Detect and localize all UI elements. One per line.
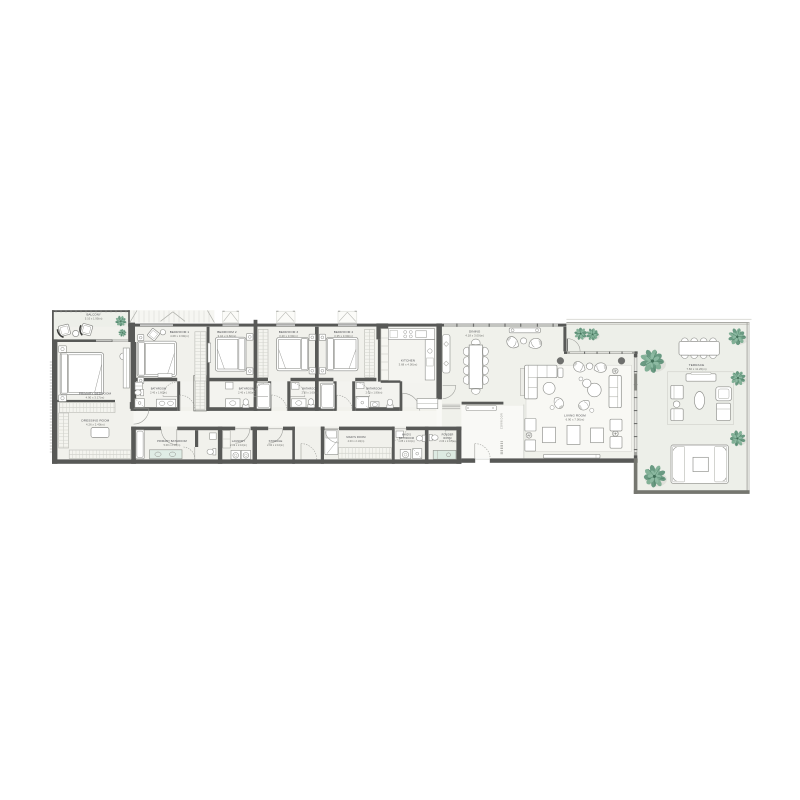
svg-text:BATHROOM: BATHROOM	[239, 386, 255, 390]
svg-text:LIVING ROOM: LIVING ROOM	[564, 413, 586, 417]
svg-text:TERRACE: TERRACE	[689, 363, 704, 367]
svg-text:BATHROOM: BATHROOM	[151, 386, 167, 390]
svg-text:4.90 x 3.17(m): 4.90 x 3.17(m)	[86, 395, 105, 399]
svg-text:BATHROOM: BATHROOM	[399, 437, 414, 440]
svg-text:2.09 x 2.10(m): 2.09 x 2.10(m)	[230, 444, 247, 447]
svg-text:BEDROOM 1: BEDROOM 1	[170, 330, 190, 334]
svg-text:MAID'S ROOM: MAID'S ROOM	[346, 435, 366, 439]
svg-text:CORRIDOR: CORRIDOR	[500, 413, 503, 429]
svg-text:2.40 x 1.60(m): 2.40 x 1.60(m)	[302, 391, 319, 394]
svg-text:BEDROOM 3: BEDROOM 3	[279, 330, 299, 334]
svg-text:6.90 x 7.00(m): 6.90 x 7.00(m)	[566, 417, 585, 421]
svg-text:BALCONY: BALCONY	[86, 312, 101, 316]
svg-text:3.20 x 3.60(m): 3.20 x 3.60(m)	[279, 334, 298, 338]
svg-text:PRIMARY BEDROOM: PRIMARY BEDROOM	[79, 391, 112, 395]
svg-text:1.85 x 2.10(m): 1.85 x 2.10(m)	[398, 441, 414, 443]
svg-text:BEDROOM 2: BEDROOM 2	[217, 330, 237, 334]
svg-text:2.00 x 2.10(m): 2.00 x 2.10(m)	[439, 441, 455, 443]
svg-text:DINING: DINING	[469, 330, 481, 334]
svg-text:STORAGE: STORAGE	[269, 439, 283, 443]
svg-text:7.60 x 11.20(m): 7.60 x 11.20(m)	[686, 367, 706, 371]
svg-text:4.00 x 2.10(m): 4.00 x 2.10(m)	[348, 440, 365, 443]
svg-text:2.40 x 1.60(m): 2.40 x 1.60(m)	[150, 391, 167, 394]
svg-text:5.10 x 1.90(m): 5.10 x 1.90(m)	[85, 317, 103, 320]
svg-text:2.40 x 1.60(m): 2.40 x 1.60(m)	[238, 391, 255, 394]
svg-text:3.10 x 3.60(m): 3.10 x 3.60(m)	[218, 334, 237, 338]
svg-text:3.35 x 3.60(m): 3.35 x 3.60(m)	[334, 334, 353, 338]
svg-text:4.08 x 3.60(m): 4.08 x 3.60(m)	[170, 334, 189, 338]
svg-text:BEDROOM 4: BEDROOM 4	[334, 330, 354, 334]
svg-text:4.26 x 2.40(m): 4.26 x 2.40(m)	[86, 422, 105, 426]
svg-text:4.18 x 3.00(m): 4.18 x 3.00(m)	[465, 334, 484, 338]
svg-text:BATHROOM: BATHROOM	[302, 386, 318, 390]
svg-text:ROOM: ROOM	[443, 437, 451, 440]
svg-text:PRIMARY BATHROOM: PRIMARY BATHROOM	[157, 439, 187, 443]
svg-text:3.68 x 4.00(m): 3.68 x 4.00(m)	[399, 363, 418, 367]
svg-text:2.05 x 1.80(m): 2.05 x 1.80(m)	[366, 391, 383, 394]
svg-text:BATHROOM: BATHROOM	[366, 386, 382, 390]
svg-text:DRESSING ROOM: DRESSING ROOM	[81, 418, 109, 422]
svg-text:2.90 x 2.10(m): 2.90 x 2.10(m)	[267, 444, 284, 447]
svg-text:KITCHEN: KITCHEN	[401, 359, 415, 363]
svg-text:5.08 x 2.10(m): 5.08 x 2.10(m)	[164, 444, 181, 447]
svg-text:LAUNDRY: LAUNDRY	[232, 439, 246, 443]
